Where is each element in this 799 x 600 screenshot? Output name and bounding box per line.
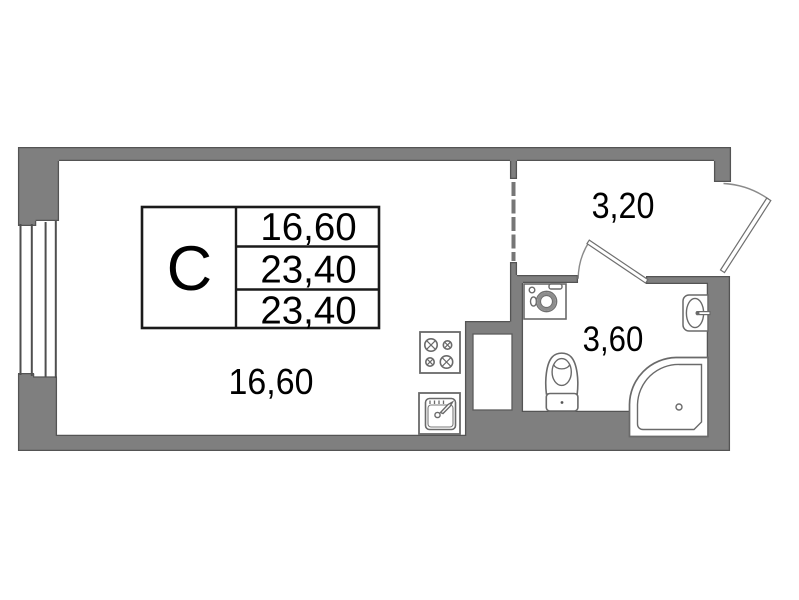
svg-text:3,20: 3,20 bbox=[592, 186, 655, 226]
svg-text:С: С bbox=[167, 234, 213, 304]
svg-text:23,40: 23,40 bbox=[260, 248, 356, 291]
svg-text:16,60: 16,60 bbox=[229, 362, 314, 402]
svg-text:3,60: 3,60 bbox=[583, 321, 644, 360]
svg-text:23,40: 23,40 bbox=[260, 290, 356, 333]
svg-text:16,60: 16,60 bbox=[260, 206, 356, 249]
